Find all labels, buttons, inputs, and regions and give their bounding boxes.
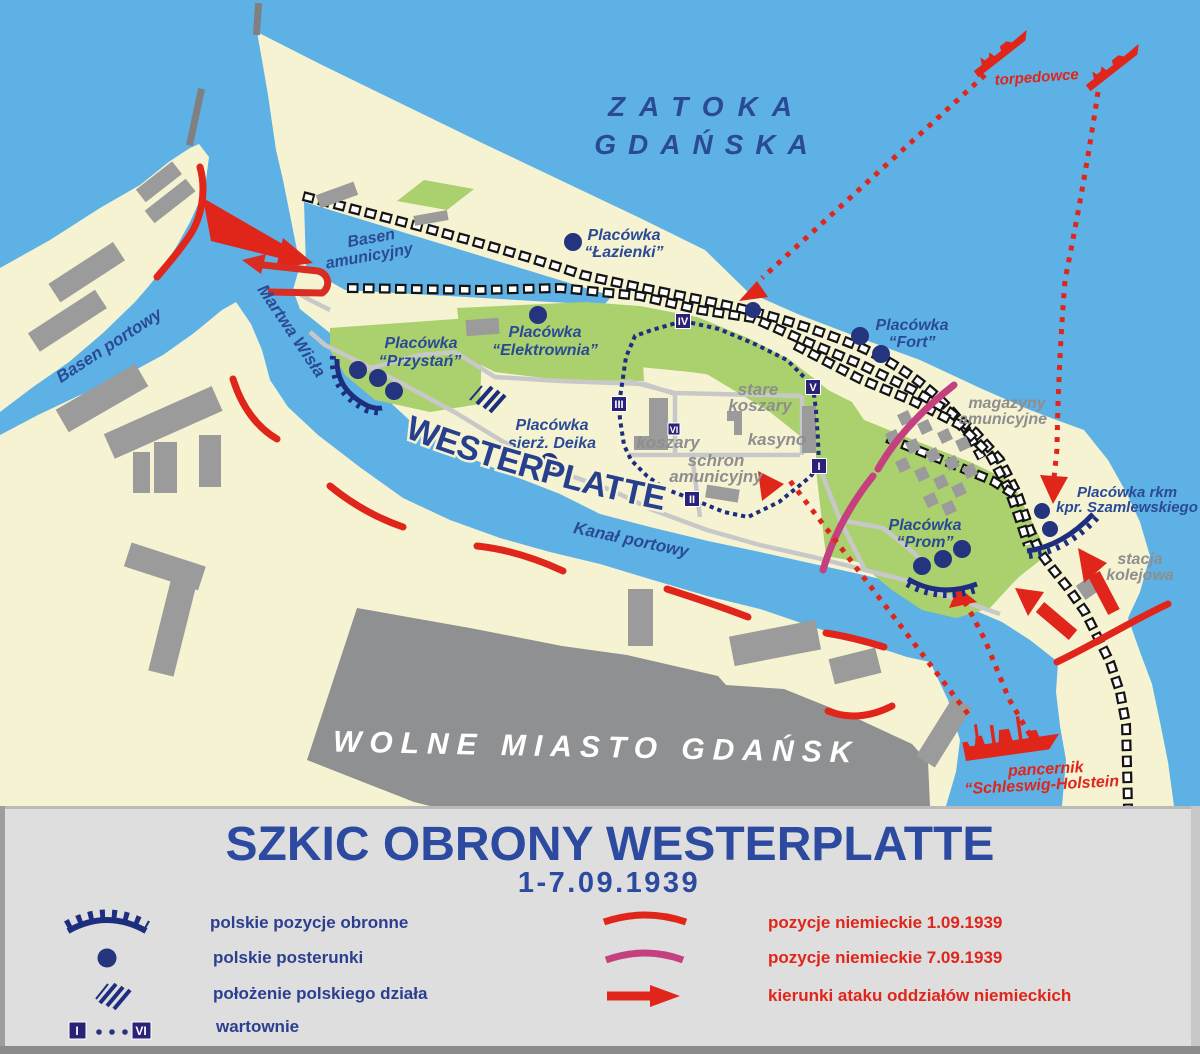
- svg-text:amunicyjny: amunicyjny: [669, 467, 764, 486]
- svg-text:1-7.09.1939: 1-7.09.1939: [518, 867, 700, 899]
- svg-text:SZKIC OBRONY WESTERPLATTE: SZKIC OBRONY WESTERPLATTE: [226, 818, 995, 871]
- svg-text:pozycje niemieckie 1.09.1939: pozycje niemieckie 1.09.1939: [768, 913, 1002, 932]
- svg-text:magazyny: magazyny: [968, 395, 1046, 412]
- svg-text:III: III: [614, 399, 623, 411]
- svg-text:I: I: [817, 461, 820, 473]
- svg-text:położenie polskiego działa: położenie polskiego działa: [213, 984, 428, 1003]
- svg-text:wartownie: wartownie: [215, 1017, 299, 1036]
- svg-text:polskie posterunki: polskie posterunki: [213, 948, 363, 967]
- svg-text:polskie pozycje obronne: polskie pozycje obronne: [210, 913, 408, 932]
- svg-text:“Prom”: “Prom”: [897, 534, 954, 551]
- svg-text:“Elektrownia”: “Elektrownia”: [492, 342, 598, 359]
- svg-text:“Łazienki”: “Łazienki”: [584, 244, 663, 261]
- svg-text:II: II: [689, 494, 695, 506]
- svg-text:amunicyjne: amunicyjne: [959, 411, 1047, 428]
- svg-text:V: V: [809, 382, 817, 394]
- svg-text:koszary: koszary: [636, 433, 701, 452]
- svg-text:“Fort”: “Fort”: [888, 334, 935, 351]
- svg-text:ZATOKA: ZATOKA: [607, 91, 806, 122]
- svg-text:stacja: stacja: [1117, 551, 1162, 568]
- svg-text:Placówka: Placówka: [516, 417, 589, 434]
- svg-text:kolejowa: kolejowa: [1106, 567, 1174, 584]
- svg-text:Placówka: Placówka: [889, 517, 962, 534]
- svg-text:pozycje niemieckie 7.09.1939: pozycje niemieckie 7.09.1939: [768, 948, 1002, 967]
- svg-text:IV: IV: [678, 316, 689, 328]
- svg-text:Placówka: Placówka: [588, 227, 661, 244]
- svg-text:koszary: koszary: [728, 396, 793, 415]
- svg-text:kasyno: kasyno: [748, 430, 807, 449]
- svg-text:kpr. Szamlewskiego: kpr. Szamlewskiego: [1056, 499, 1198, 516]
- svg-text:I: I: [75, 1024, 78, 1038]
- svg-text:kierunki ataku oddziałów niemi: kierunki ataku oddziałów niemieckich: [768, 986, 1071, 1005]
- svg-text:GDAŃSKA: GDAŃSKA: [594, 129, 820, 160]
- svg-text:Placówka: Placówka: [509, 324, 582, 341]
- svg-text:“Przystań”: “Przystań”: [379, 353, 462, 370]
- svg-text:VI: VI: [135, 1024, 146, 1038]
- svg-text:Placówka: Placówka: [385, 335, 458, 352]
- svg-text:Placówka: Placówka: [876, 317, 949, 334]
